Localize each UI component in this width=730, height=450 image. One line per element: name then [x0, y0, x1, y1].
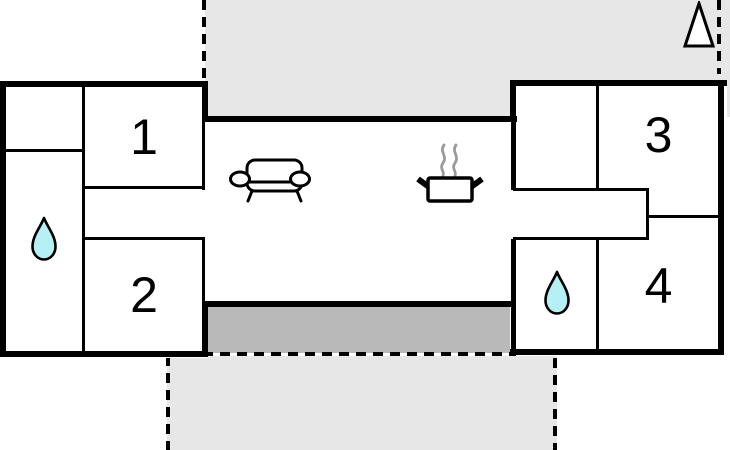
boundary-dash-bottom-left — [166, 356, 170, 450]
room-3-label: 3 — [598, 106, 719, 164]
wall — [82, 237, 205, 240]
wall — [510, 80, 727, 86]
room-1-label: 1 — [85, 108, 203, 166]
boundary-dash-top-right — [717, 0, 721, 74]
wall — [646, 215, 720, 218]
wall — [203, 301, 516, 307]
wall — [0, 81, 6, 357]
floor-plan: 1 2 3 4 — [0, 0, 730, 450]
room-4-label: 4 — [598, 257, 719, 315]
terrace-bottom — [167, 356, 557, 450]
wall — [510, 349, 724, 355]
wall — [511, 119, 516, 190]
wall — [510, 80, 516, 122]
cooking-pot-icon — [412, 141, 488, 204]
sofa-icon — [227, 155, 311, 203]
wall — [4, 149, 84, 152]
wall — [646, 188, 649, 240]
wall — [513, 188, 649, 191]
tree-icon — [682, 1, 716, 49]
boundary-dash-bottom-horizontal — [203, 352, 516, 356]
boundary-dash-bottom-right — [553, 358, 557, 450]
wall — [511, 239, 516, 351]
wall — [513, 237, 649, 240]
wall — [0, 351, 208, 357]
wall — [203, 116, 517, 122]
boundary-dash-top-left — [202, 0, 206, 79]
wall — [0, 81, 208, 87]
water-drop-icon — [541, 268, 573, 318]
wall — [82, 186, 205, 189]
room-2-label: 2 — [85, 266, 203, 324]
covered-terrace — [206, 306, 510, 353]
water-drop-icon — [28, 215, 60, 263]
